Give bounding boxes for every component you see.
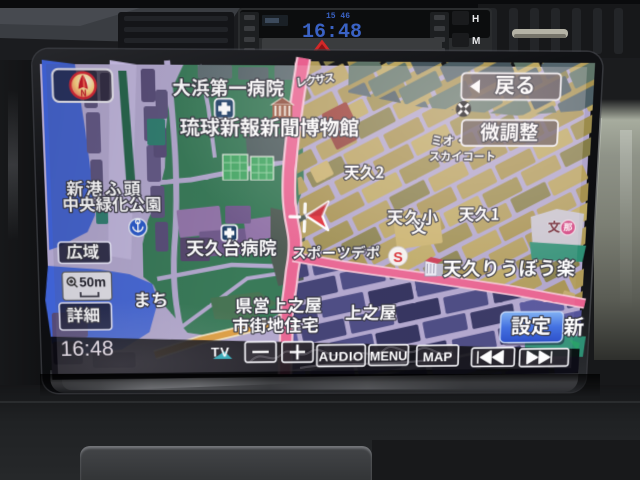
svg-text:M: M [472,36,480,47]
svg-text:H: H [472,14,479,25]
svg-text:15 46: 15 46 [326,12,350,21]
